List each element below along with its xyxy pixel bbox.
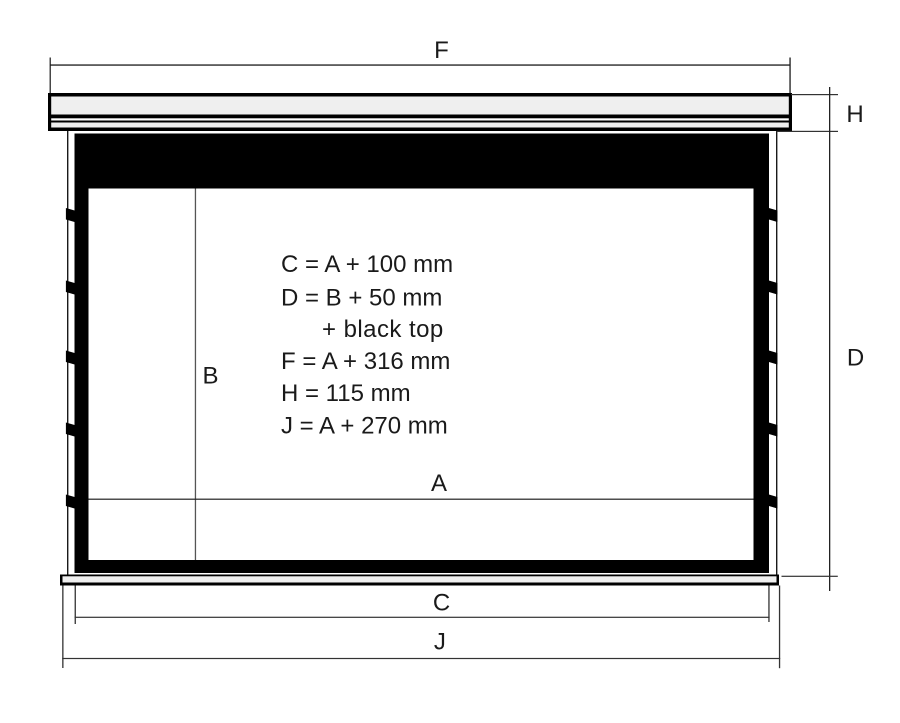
svg-text:J = A + 270 mm: J = A + 270 mm xyxy=(281,412,448,439)
svg-text:C = A + 100 mm: C = A + 100 mm xyxy=(281,251,453,278)
svg-text:A: A xyxy=(431,470,447,497)
svg-text:D: D xyxy=(847,345,864,372)
svg-text:D = B + 50 mm: D = B + 50 mm xyxy=(281,284,442,311)
svg-text:H = 115 mm: H = 115 mm xyxy=(281,380,411,407)
svg-text:B: B xyxy=(202,363,218,390)
svg-text:J: J xyxy=(434,629,446,656)
svg-text:C: C xyxy=(433,590,450,617)
svg-text:F: F xyxy=(434,37,449,64)
svg-text:+ black top: + black top xyxy=(322,316,444,343)
svg-text:H: H xyxy=(846,101,863,128)
svg-text:F = A + 316 mm: F = A + 316 mm xyxy=(281,348,450,375)
